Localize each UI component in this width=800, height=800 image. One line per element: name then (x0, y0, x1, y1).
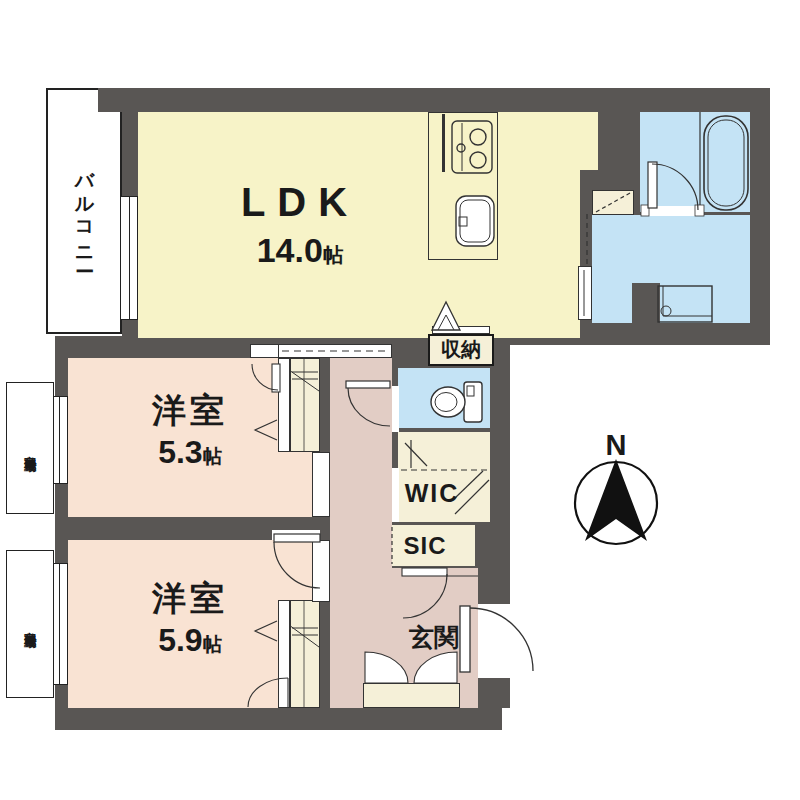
sink-icon (456, 196, 494, 246)
bedroom1-door-swing-icon (252, 364, 280, 392)
storage-label: 収納 (428, 337, 494, 361)
sic-label: SIC (392, 532, 458, 561)
stove-icon (442, 114, 492, 173)
wic-label: WIC (396, 478, 468, 508)
bedroom2-label: 洋室 5.9帖 (90, 578, 290, 659)
washroom-sliding-door-icon (584, 214, 587, 316)
toilet-door-swing-icon (346, 381, 390, 426)
outdoor-unit2-label: 室外機置場 (10, 560, 50, 688)
compass-icon (575, 459, 657, 544)
balcony-label: バルコニー (52, 96, 116, 326)
bathroom-door-swing-icon (641, 162, 704, 216)
washroom-nook-dash (596, 193, 630, 212)
bedroom2-closet-door-swing-icon (248, 678, 288, 707)
ldk-name: LDK (190, 178, 410, 226)
toilet-icon (431, 382, 482, 422)
bedroom1-label: 洋室 5.3帖 (90, 390, 290, 471)
entrance-label: 玄関 (392, 622, 476, 652)
washing-machine-icon (658, 286, 712, 322)
shoe-closet-double-door-icon (365, 652, 457, 683)
ldk-area: 14.0帖 (190, 230, 410, 271)
compass-north-label: N (598, 428, 634, 463)
ldk-label: LDK 14.0帖 (190, 178, 410, 271)
bathtub-icon (700, 112, 748, 212)
floor-plan: LDK 14.0帖 洋室 5.3帖 洋室 5.9帖 バルコニー 収納 WIC S… (0, 0, 800, 800)
folding-door-icon (432, 302, 460, 330)
outdoor-unit1-label: 室外機置場 (10, 388, 50, 508)
